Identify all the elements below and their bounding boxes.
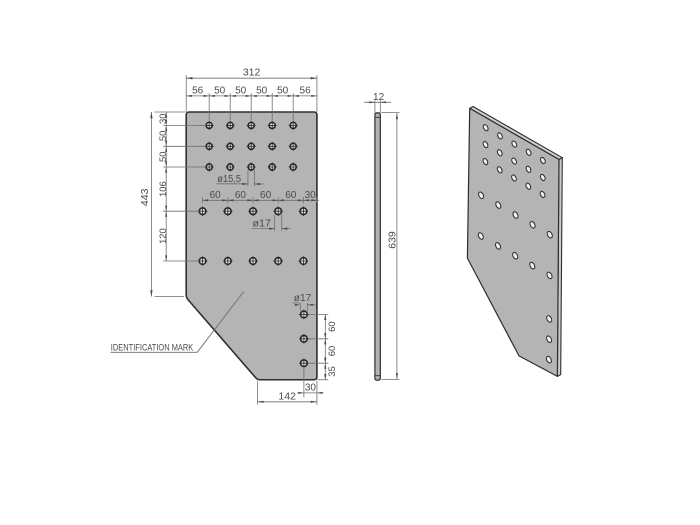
svg-text:30: 30 <box>305 383 317 394</box>
svg-text:106: 106 <box>158 181 169 197</box>
svg-text:50: 50 <box>158 151 169 162</box>
svg-text:443: 443 <box>139 188 151 206</box>
svg-text:ø17: ø17 <box>253 218 272 229</box>
svg-text:142: 142 <box>278 390 296 402</box>
svg-text:60: 60 <box>327 321 338 332</box>
svg-text:56: 56 <box>192 86 204 97</box>
svg-text:50: 50 <box>256 86 268 97</box>
svg-text:120: 120 <box>158 228 169 244</box>
svg-text:50: 50 <box>277 86 289 97</box>
svg-text:50: 50 <box>158 131 169 142</box>
svg-text:312: 312 <box>243 67 261 79</box>
svg-text:12: 12 <box>373 92 385 103</box>
svg-text:56: 56 <box>300 86 312 97</box>
svg-text:639: 639 <box>387 231 399 249</box>
svg-text:30: 30 <box>305 190 317 201</box>
svg-text:50: 50 <box>214 86 226 97</box>
svg-text:60: 60 <box>327 346 338 357</box>
svg-text:ø15,5: ø15,5 <box>217 174 241 185</box>
svg-text:60: 60 <box>260 190 272 201</box>
svg-text:30: 30 <box>158 113 169 124</box>
svg-text:ø17: ø17 <box>294 293 312 304</box>
svg-text:50: 50 <box>235 86 247 97</box>
svg-text:60: 60 <box>210 190 222 201</box>
svg-text:60: 60 <box>235 190 247 201</box>
svg-text:35: 35 <box>327 366 338 377</box>
svg-text:IDENTIFICATION MARK: IDENTIFICATION MARK <box>111 342 194 353</box>
svg-text:60: 60 <box>285 190 297 201</box>
